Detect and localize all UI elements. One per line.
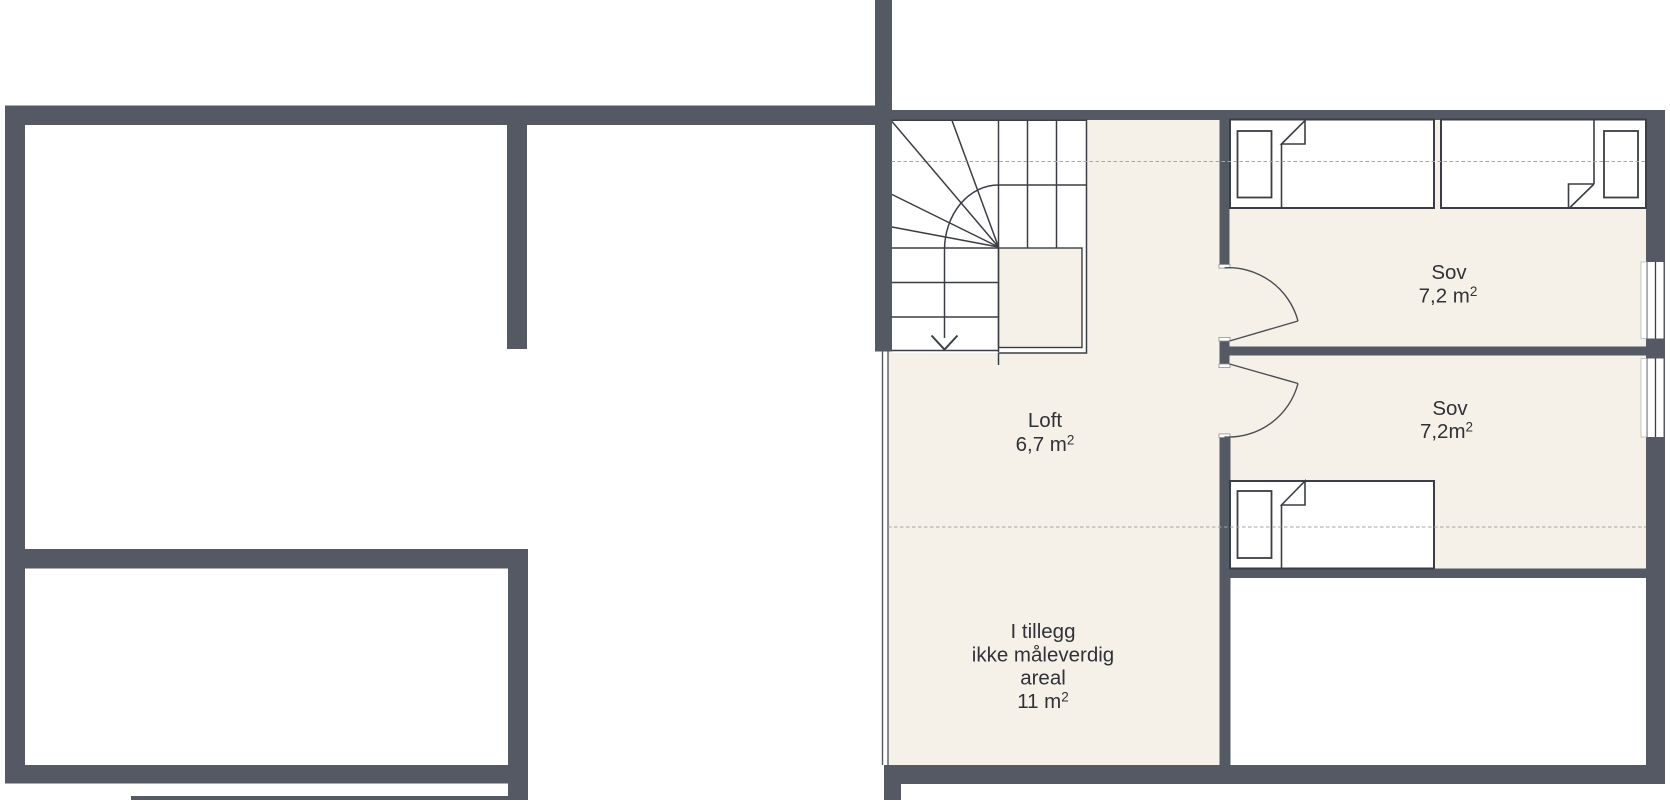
svg-text:7,2m2: 7,2m2 [1420,420,1473,444]
svg-text:6,7 m2: 6,7 m2 [1016,433,1075,457]
svg-text:Loft: Loft [1028,409,1062,432]
svg-text:I tillegg: I tillegg [1011,620,1076,643]
svg-text:Sov: Sov [1432,397,1468,420]
svg-text:7,2 m2: 7,2 m2 [1419,284,1478,308]
svg-text:ikke måleverdig: ikke måleverdig [972,643,1114,666]
svg-text:Sov: Sov [1431,261,1467,284]
svg-text:11 m2: 11 m2 [1017,689,1069,713]
svg-text:areal: areal [1020,667,1066,690]
